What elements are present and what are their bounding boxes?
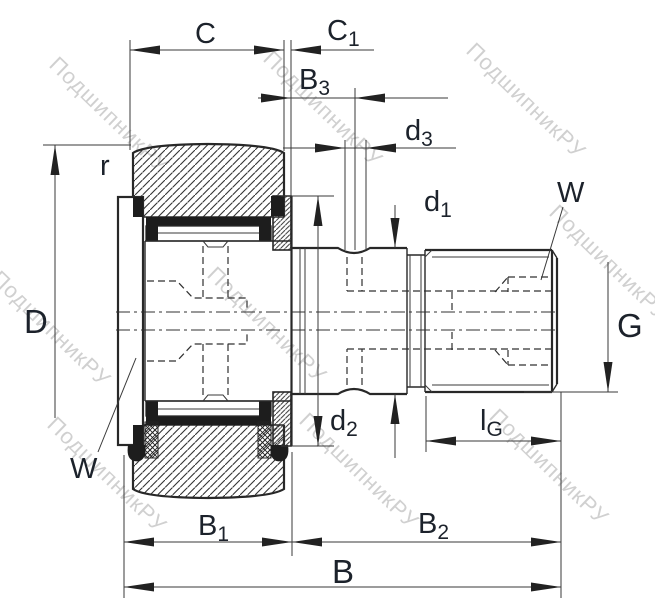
label-C: C [195,18,216,50]
bearing-dimension-diagram: ПодшипникРУ ПодшипникРУ ПодшипникРУ Подш… [0,0,655,611]
watermark-text: ПодшипникРУ [203,262,332,388]
needle-roller-row-bottom [146,401,271,425]
label-B: B [332,553,354,590]
label-D: D [24,303,48,340]
label-d1: d1 [424,186,452,222]
drawing-canvas: ПодшипникРУ ПодшипникРУ ПодшипникРУ Подш… [0,0,655,611]
label-d3: d3 [405,115,433,151]
watermark-text: ПодшипникРУ [485,404,614,530]
label-d2: d2 [330,405,358,441]
watermark-text: ПодшипникРУ [0,266,116,392]
label-G: G [617,307,643,344]
stud-shank [292,248,551,394]
label-B3: B3 [299,64,330,100]
label-r: r [100,150,110,182]
needle-roller-row-top [146,217,271,241]
label-W-thread-end: W [557,177,585,209]
dimension-d1 [391,205,400,458]
label-C1: C1 [327,15,360,51]
dimension-B3 [258,94,448,103]
label-B1: B1 [198,510,229,546]
stud-thread [425,250,557,392]
outer-ring-top [133,144,284,217]
dimension-d2 [314,196,323,446]
label-W-flange-end: W [70,453,98,485]
label-B2: B2 [418,508,449,544]
watermark-text: ПодшипникРУ [462,38,591,164]
left-end-washer [118,197,143,445]
watermark-text: ПодшипникРУ [295,408,424,534]
dimension-D [51,145,60,418]
